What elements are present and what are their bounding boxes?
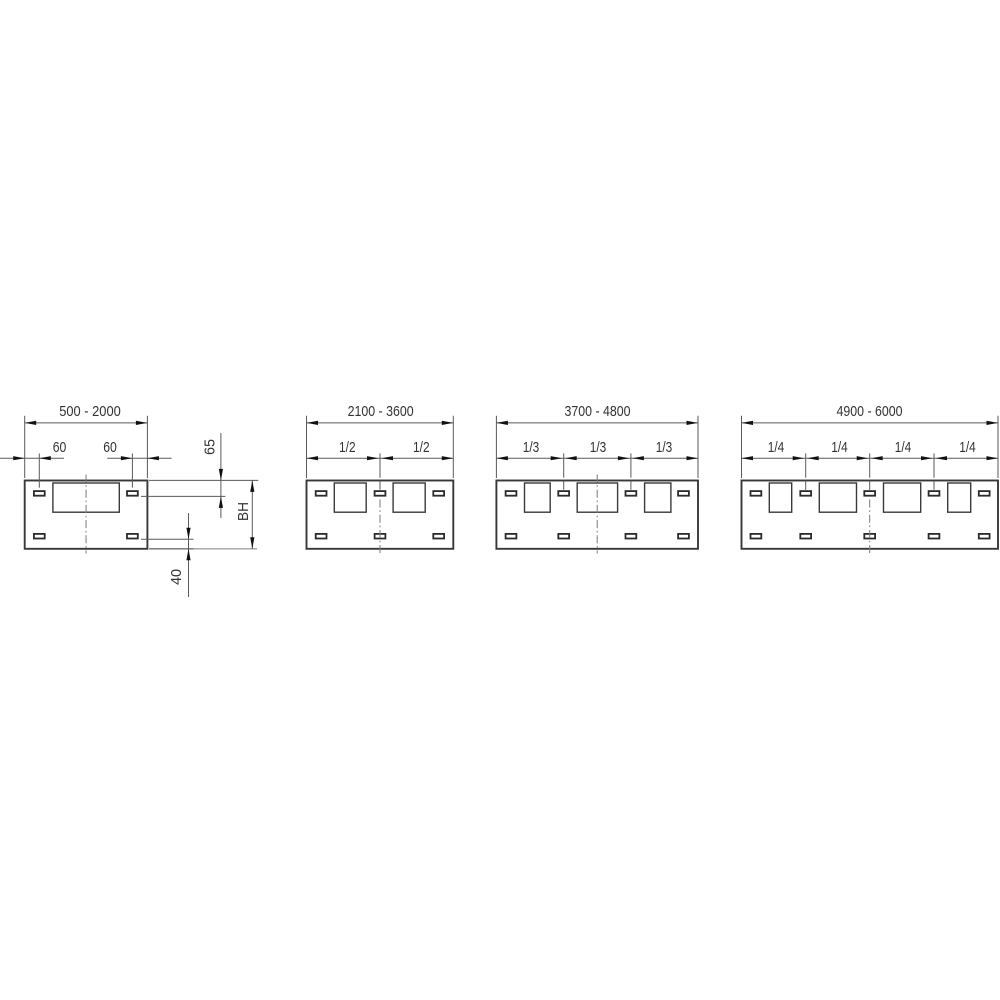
svg-text:2100 - 3600: 2100 - 3600 [348,403,414,420]
svg-text:1/4: 1/4 [768,439,785,456]
svg-text:1/3: 1/3 [590,439,607,456]
svg-text:1/2: 1/2 [413,439,430,456]
svg-text:65: 65 [202,439,219,455]
svg-text:60: 60 [103,439,117,456]
svg-text:1/4: 1/4 [895,439,912,456]
svg-text:1/4: 1/4 [959,439,976,456]
svg-text:40: 40 [168,569,185,585]
svg-text:1/3: 1/3 [656,439,673,456]
svg-text:3700 - 4800: 3700 - 4800 [565,403,631,420]
svg-text:BH: BH [235,502,252,521]
svg-text:4900 - 6000: 4900 - 6000 [837,403,903,420]
svg-text:1/2: 1/2 [339,439,356,456]
svg-text:60: 60 [53,439,67,456]
svg-text:500 - 2000: 500 - 2000 [59,403,121,420]
svg-text:1/4: 1/4 [831,439,848,456]
svg-text:1/3: 1/3 [523,439,540,456]
